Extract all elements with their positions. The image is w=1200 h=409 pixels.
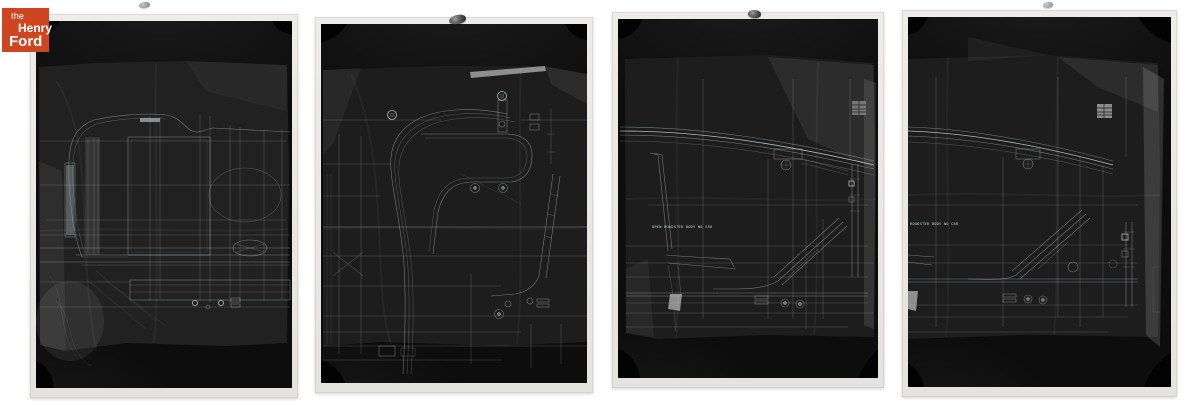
blueprint-art-4: OPEN ROADSTER BODY NO CAR xyxy=(908,17,1171,387)
seat-support xyxy=(668,294,682,311)
tracing-sheet xyxy=(908,55,1160,339)
push-pin xyxy=(1043,2,1053,9)
title-stamp xyxy=(1097,104,1112,118)
board: the Henry Ford xyxy=(0,0,1200,409)
film-negative-2 xyxy=(321,24,587,383)
blueprint-art-1 xyxy=(36,21,292,388)
film-negative-3: OPEN ROADSTER BODY NO CAR xyxy=(618,19,878,378)
blueprint-art-3: OPEN ROADSTER BODY NO CAR xyxy=(618,19,878,378)
logo-line-ford: Ford xyxy=(9,34,49,49)
photo-print-4: OPEN ROADSTER BODY NO CAR xyxy=(902,10,1177,397)
title-stamp xyxy=(852,101,866,115)
photo-print-3: OPEN ROADSTER BODY NO CAR xyxy=(612,12,884,388)
photo-print-1 xyxy=(30,14,298,398)
film-negative-1 xyxy=(36,21,292,388)
blueprint-art-2 xyxy=(321,24,587,383)
henry-ford-logo: the Henry Ford xyxy=(2,8,49,52)
film-negative-4: OPEN ROADSTER BODY NO CAR xyxy=(908,17,1171,387)
drawing-title-label: OPEN ROADSTER BODY NO CAR xyxy=(908,222,959,226)
photo-print-2 xyxy=(315,17,593,393)
logo-line-the: the xyxy=(11,12,49,21)
drawing-title-label: OPEN ROADSTER BODY NO CAR xyxy=(652,225,713,229)
push-pin xyxy=(139,1,151,8)
